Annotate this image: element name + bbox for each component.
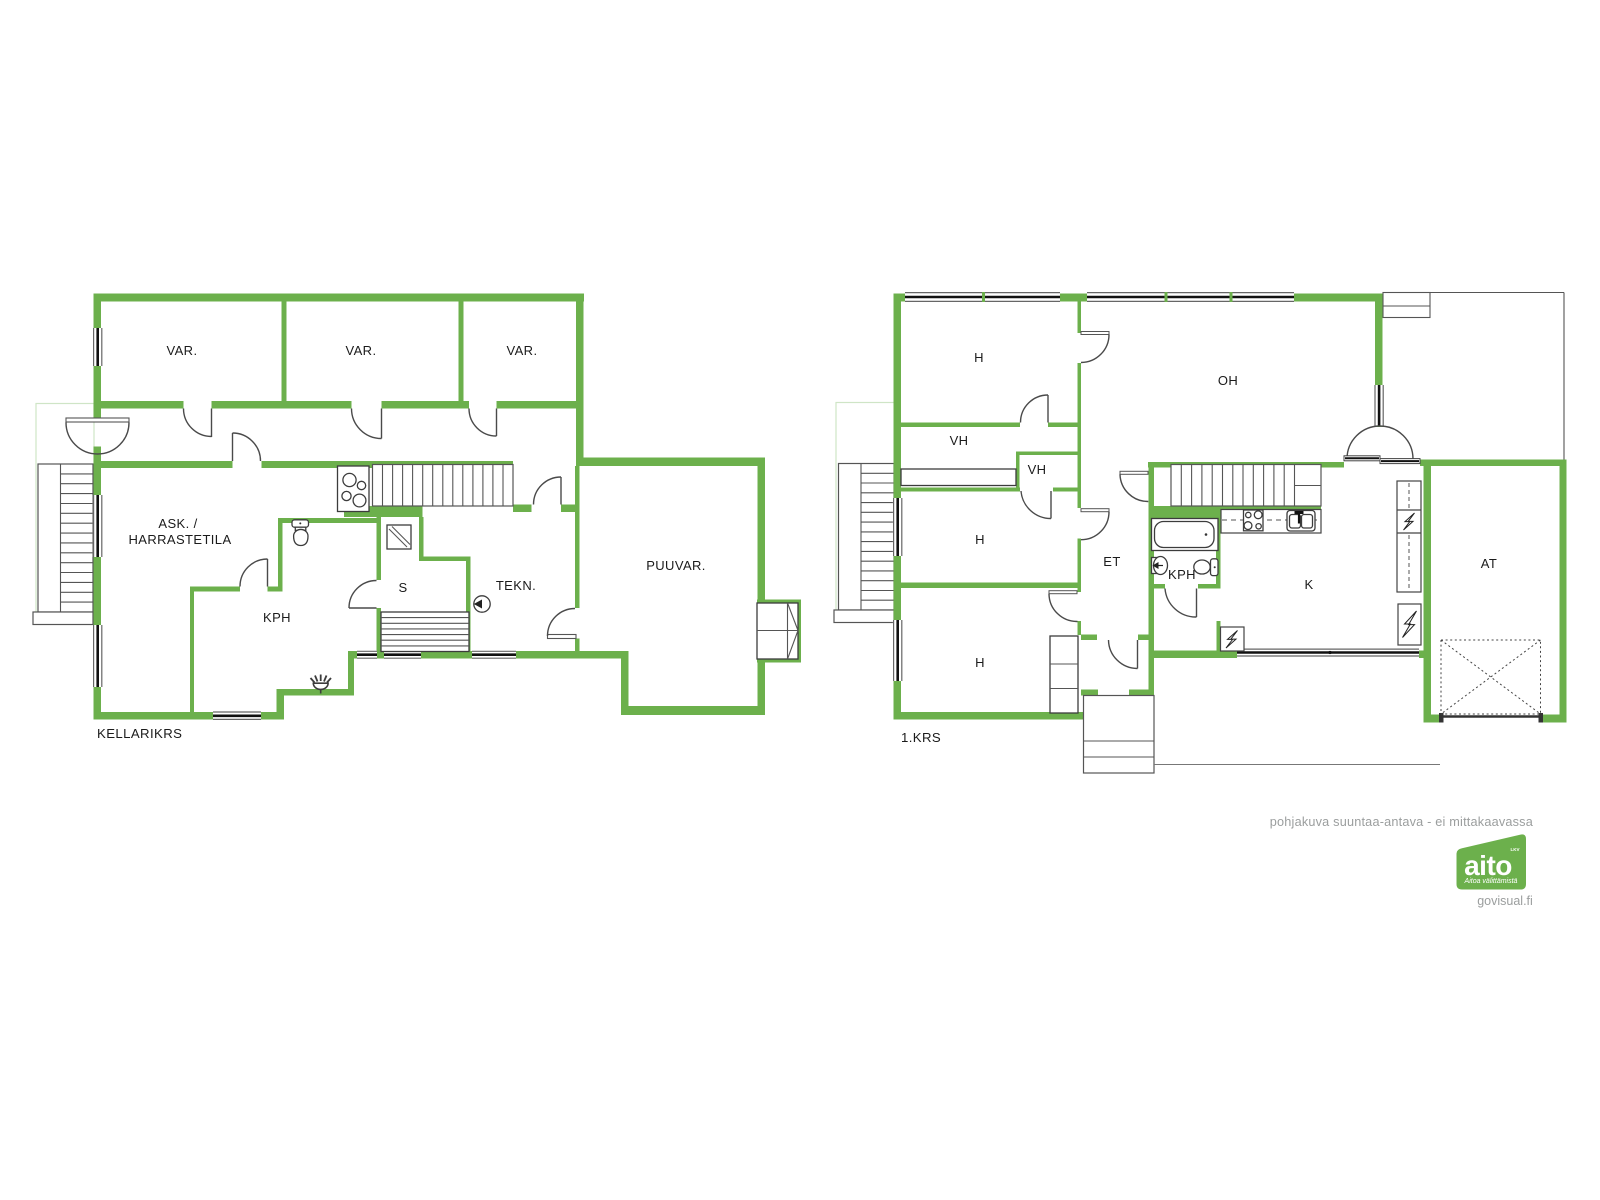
svg-text:VAR.: VAR. <box>346 343 377 358</box>
svg-text:OH: OH <box>1218 373 1238 388</box>
svg-text:Aitoa välittämistä: Aitoa välittämistä <box>1464 878 1518 885</box>
svg-text:LKV: LKV <box>1511 847 1520 852</box>
svg-text:TEKN.: TEKN. <box>496 578 536 593</box>
svg-text:KELLARIKRS: KELLARIKRS <box>97 726 182 741</box>
svg-text:VAR.: VAR. <box>167 343 198 358</box>
svg-text:HARRASTETILA: HARRASTETILA <box>128 532 231 547</box>
svg-text:ET: ET <box>1103 554 1120 569</box>
svg-text:aito: aito <box>1464 850 1512 881</box>
svg-text:VH: VH <box>950 433 969 448</box>
svg-text:pohjakuva suuntaa-antava - ei: pohjakuva suuntaa-antava - ei mittakaava… <box>1270 815 1534 829</box>
svg-text:H: H <box>975 532 985 547</box>
svg-text:K: K <box>1304 577 1313 592</box>
svg-text:ASK. /: ASK. / <box>158 516 197 531</box>
svg-text:1.KRS: 1.KRS <box>901 730 941 745</box>
svg-text:KPH: KPH <box>1168 567 1196 582</box>
svg-text:PUUVAR.: PUUVAR. <box>646 558 706 573</box>
svg-text:H: H <box>975 655 985 670</box>
svg-text:VH: VH <box>1028 462 1047 477</box>
svg-text:H: H <box>974 350 984 365</box>
svg-text:VAR.: VAR. <box>507 343 538 358</box>
svg-text:govisual.fi: govisual.fi <box>1477 894 1533 908</box>
svg-text:AT: AT <box>1481 556 1497 571</box>
svg-text:KPH: KPH <box>263 610 291 625</box>
svg-text:S: S <box>398 580 407 595</box>
